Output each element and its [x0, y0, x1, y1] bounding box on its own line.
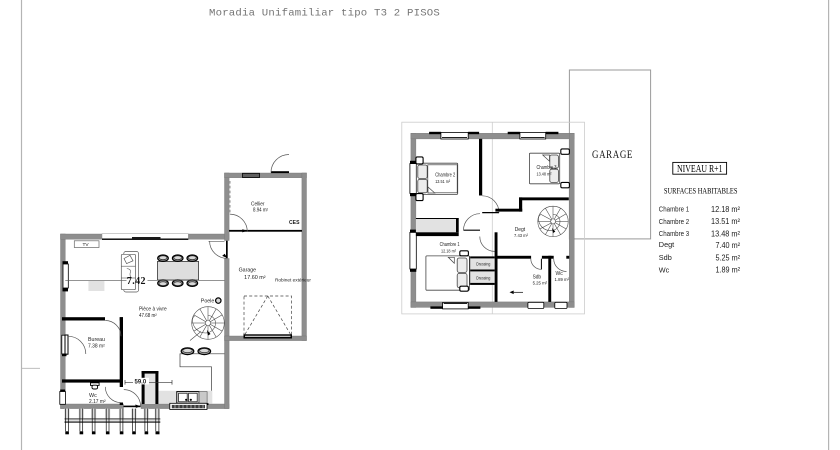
- svg-text:Poele: Poele: [201, 298, 215, 304]
- svg-text:12.18 m²: 12.18 m²: [711, 205, 740, 214]
- svg-text:47.68 m²: 47.68 m²: [139, 313, 157, 319]
- svg-text:8.94 m²: 8.94 m²: [253, 207, 268, 213]
- svg-text:NIVEAU R+1: NIVEAU R+1: [677, 163, 723, 175]
- svg-text:1.89 m²: 1.89 m²: [555, 277, 570, 282]
- svg-text:Dressing: Dressing: [476, 262, 490, 267]
- svg-text:Chambre 3: Chambre 3: [659, 229, 689, 238]
- svg-text:7.43 m²: 7.43 m²: [514, 233, 528, 239]
- svg-text:TV: TV: [83, 242, 90, 248]
- svg-text:Chambre 3: Chambre 3: [537, 165, 557, 171]
- svg-text:5.25 m²: 5.25 m²: [716, 254, 741, 263]
- svg-text:Wc: Wc: [659, 265, 670, 274]
- svg-text:Chambre 2: Chambre 2: [659, 217, 689, 226]
- svg-text:Chambre 2: Chambre 2: [435, 173, 455, 179]
- svg-text:Sdb: Sdb: [533, 275, 542, 281]
- svg-text:Chambre 1: Chambre 1: [659, 205, 689, 214]
- svg-text:Chambre 1: Chambre 1: [440, 242, 460, 248]
- svg-text:Bureau: Bureau: [88, 337, 105, 343]
- svg-text:13.48 m²: 13.48 m²: [537, 171, 552, 177]
- svg-text:13.51 m²: 13.51 m²: [711, 217, 740, 226]
- svg-text:17.60 m²: 17.60 m²: [244, 275, 266, 281]
- svg-text:1.89 m²: 1.89 m²: [716, 266, 741, 275]
- svg-text:Moradia Unifamiliar tipo T3 2: Moradia Unifamiliar tipo T3 2 PISOS: [209, 8, 440, 20]
- svg-text:7.42: 7.42: [127, 276, 146, 287]
- svg-text:2.17 m²: 2.17 m²: [89, 399, 106, 405]
- svg-text:7.40 m²: 7.40 m²: [716, 241, 741, 250]
- svg-text:Pièce à vivre: Pièce à vivre: [139, 307, 167, 313]
- svg-text:5.25 m²: 5.25 m²: [533, 281, 548, 287]
- svg-text:Sdb: Sdb: [659, 253, 672, 262]
- svg-text:59.0: 59.0: [135, 380, 147, 386]
- svg-text:Degt: Degt: [659, 240, 674, 249]
- svg-text:SURFACES HABITABLES: SURFACES HABITABLES: [664, 186, 738, 196]
- svg-text:Degt: Degt: [515, 227, 526, 233]
- svg-text:Dressing: Dressing: [476, 275, 490, 280]
- svg-text:Robinet extérieur: Robinet extérieur: [275, 278, 311, 284]
- svg-text:12.18 m²: 12.18 m²: [441, 249, 456, 255]
- svg-text:7.38 m²: 7.38 m²: [88, 343, 105, 349]
- svg-text:13.48 m²: 13.48 m²: [711, 230, 740, 239]
- svg-text:GARAGE: GARAGE: [592, 147, 633, 161]
- svg-text:13.51 m²: 13.51 m²: [435, 179, 450, 185]
- svg-text:CES: CES: [289, 220, 300, 226]
- svg-text:Garage: Garage: [239, 268, 257, 274]
